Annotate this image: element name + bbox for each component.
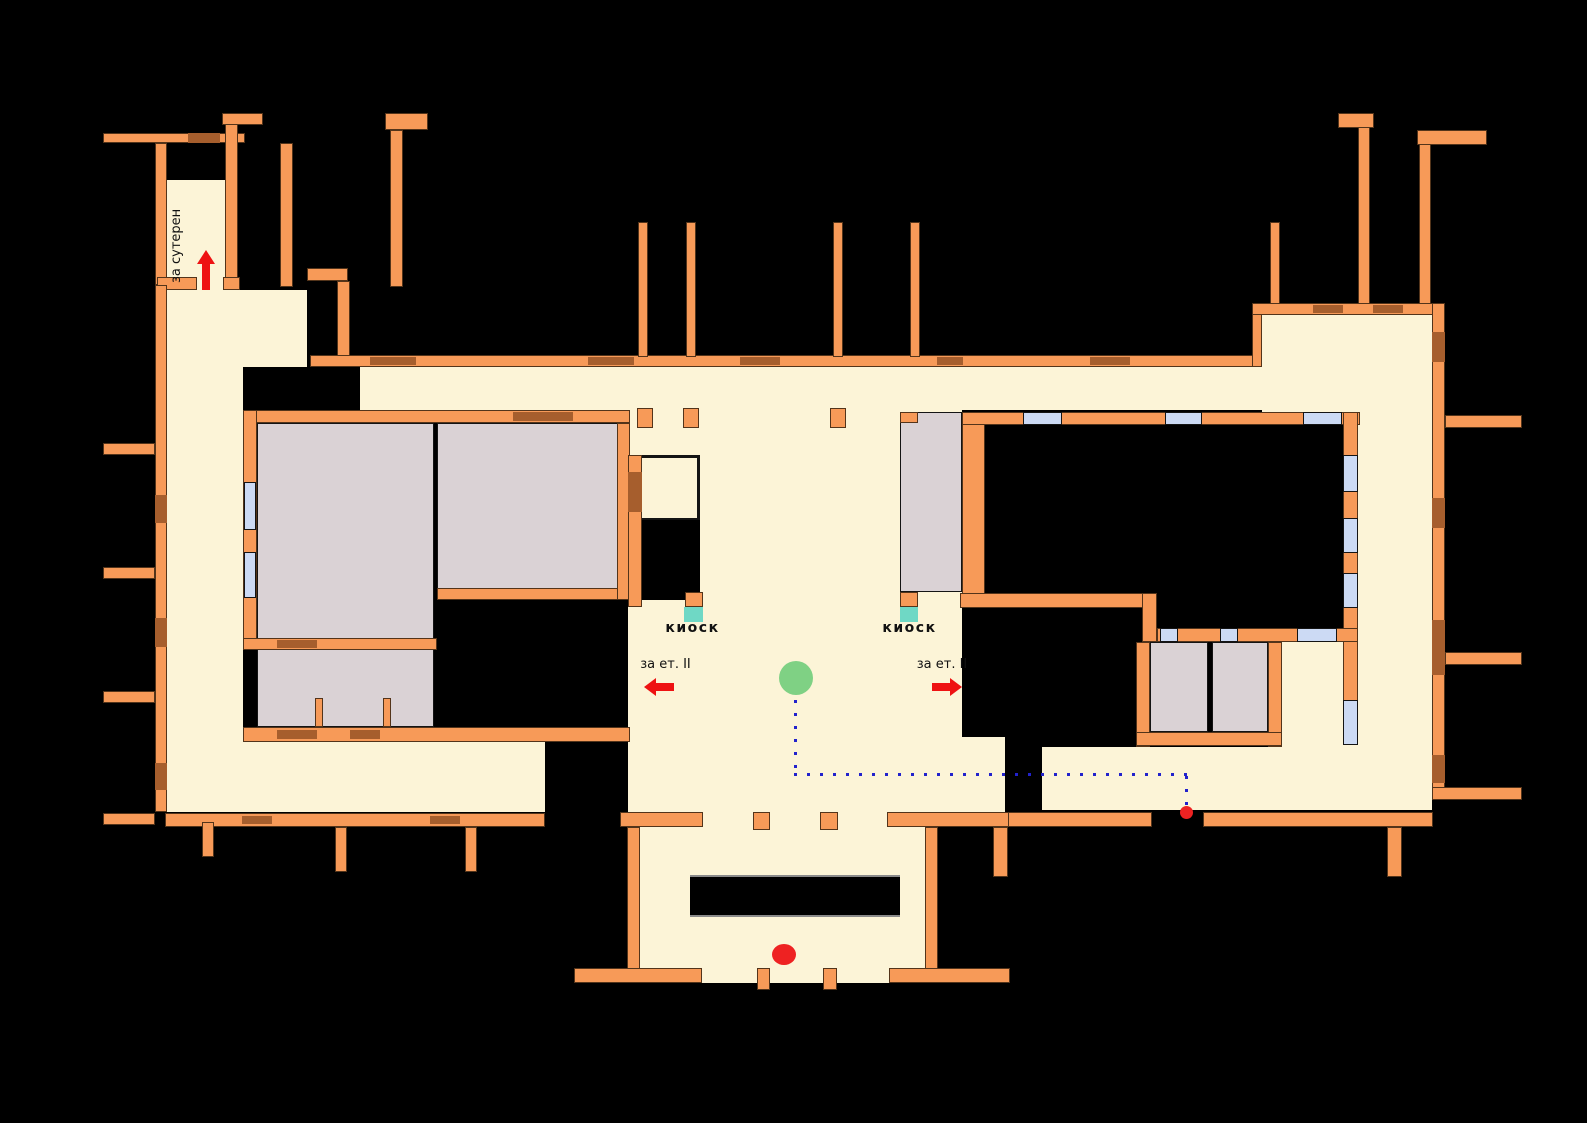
room	[257, 648, 434, 727]
door-lintel	[155, 495, 167, 523]
door-lintel	[277, 640, 317, 648]
wall-segment	[243, 638, 437, 650]
pier	[637, 408, 653, 428]
door-lintel	[155, 618, 167, 647]
wall-vestibule-west	[627, 827, 640, 983]
door-jamb	[757, 968, 770, 990]
door-jamb	[383, 698, 391, 727]
wall-stub	[103, 813, 155, 825]
wall-segment	[225, 113, 238, 285]
window	[1343, 518, 1358, 553]
wall-segment	[337, 281, 350, 357]
wall-segment	[1252, 303, 1445, 315]
wall-south	[165, 813, 545, 827]
pier	[830, 408, 846, 428]
wall-stub	[202, 822, 214, 857]
wall-segment	[280, 143, 293, 287]
window	[1343, 455, 1358, 492]
door-lintel	[1373, 305, 1403, 313]
wall-segment	[1136, 732, 1282, 746]
door-lintel	[370, 357, 416, 365]
window	[1343, 573, 1358, 608]
stair-edge	[690, 915, 900, 917]
wall-stub	[638, 222, 648, 357]
wall-stub	[103, 443, 155, 455]
entrance-stairs	[690, 877, 900, 915]
door-lintel	[740, 357, 780, 365]
wall-stub	[1432, 787, 1522, 800]
wall-segment	[685, 592, 703, 607]
wall-segment	[1008, 812, 1152, 827]
floor-top-corridor	[360, 367, 1262, 410]
room	[1212, 642, 1268, 732]
door-jamb	[820, 812, 838, 830]
floor-area	[167, 290, 307, 367]
door-lintel	[188, 133, 220, 143]
door-lintel	[1432, 755, 1445, 783]
wall-stub	[1445, 652, 1522, 665]
pier	[900, 412, 918, 423]
wall-segment	[307, 268, 348, 281]
wall-east-outer	[1432, 303, 1445, 800]
stairwell	[642, 520, 700, 600]
wall-segment	[620, 812, 703, 827]
floor-south-corridor-right	[1042, 747, 1432, 810]
start-marker	[779, 661, 813, 695]
wall-stub	[335, 827, 347, 872]
wall-segment	[223, 277, 240, 290]
door-lintel	[350, 730, 380, 739]
label-to-floor2-left: за ет. II	[633, 657, 698, 672]
wall-segment	[900, 592, 918, 607]
window	[1303, 412, 1342, 425]
window	[244, 482, 256, 530]
arrow-right-icon	[932, 678, 962, 696]
wall-stub	[993, 827, 1008, 877]
door-lintel	[1090, 357, 1130, 365]
window	[1160, 628, 1178, 642]
wall-stub	[103, 567, 155, 579]
wall-stub	[1270, 222, 1280, 307]
door-lintel	[628, 472, 642, 512]
door-lintel	[937, 357, 963, 365]
wall-segment	[1338, 113, 1374, 128]
window	[1343, 700, 1358, 745]
window	[1023, 412, 1062, 425]
wall-stub	[910, 222, 920, 357]
room	[437, 423, 627, 590]
door-lintel	[1432, 332, 1445, 362]
wall-stub	[1419, 130, 1431, 305]
door-jamb	[315, 698, 323, 727]
wall-west-outer	[155, 285, 167, 812]
door-lintel	[155, 763, 167, 790]
wall-vestibule-east	[925, 827, 938, 983]
floor-south-corridor-left	[167, 737, 545, 812]
wall-segment	[437, 588, 630, 600]
room	[900, 412, 962, 592]
wall-segment	[103, 133, 245, 143]
wall-hall-west	[962, 412, 985, 608]
door-lintel	[1432, 620, 1445, 675]
route-path	[794, 700, 797, 770]
arrow-up-icon	[197, 250, 215, 290]
wall-segment	[889, 968, 1010, 983]
wall-segment	[1417, 130, 1487, 145]
label-kiosk-left: киоск	[655, 620, 730, 636]
door-lintel	[1313, 305, 1343, 313]
wall-segment	[574, 968, 702, 983]
door-jamb	[753, 812, 770, 830]
window	[244, 552, 256, 598]
door-lintel	[430, 816, 460, 824]
pier	[683, 408, 699, 428]
wall-stub	[833, 222, 843, 357]
entrance-marker	[772, 944, 796, 965]
wall-stub	[1445, 415, 1522, 428]
partition-line	[697, 455, 700, 520]
route-path	[1185, 776, 1188, 808]
wall-stub	[103, 691, 155, 703]
wall-hall-north	[962, 412, 1360, 425]
window	[1297, 628, 1337, 642]
floor-plan: за сутерен киоск киоск за ет. II за ет. …	[0, 0, 1587, 1123]
route-end-marker	[1180, 806, 1193, 819]
floor-right-entry	[1262, 312, 1432, 412]
window	[1165, 412, 1202, 425]
wall-segment	[155, 143, 167, 285]
wall-stub	[1387, 827, 1402, 877]
wall-segment	[1142, 593, 1157, 642]
wall-segment	[222, 113, 263, 125]
door-jamb	[823, 968, 837, 990]
door-lintel	[277, 730, 317, 739]
room	[257, 423, 434, 640]
wall-hall-south	[960, 593, 1157, 608]
room	[1150, 642, 1208, 732]
wall-segment	[390, 130, 403, 287]
wall-stub	[1358, 113, 1370, 305]
wall-stub	[686, 222, 696, 357]
wall-stub	[465, 827, 477, 872]
label-to-basement: за сутерен	[169, 183, 184, 283]
door-lintel	[1432, 498, 1445, 528]
label-to-floor2-right: за ет. II	[908, 657, 976, 672]
door-lintel	[588, 357, 634, 365]
partition-line	[642, 455, 700, 458]
wall-segment	[385, 113, 428, 130]
door-lintel	[513, 412, 573, 421]
window	[1220, 628, 1238, 642]
arrow-left-icon	[644, 678, 674, 696]
label-kiosk-right: киоск	[872, 620, 947, 636]
route-path	[794, 773, 1188, 776]
wall-segment	[1203, 812, 1433, 827]
void-area	[310, 367, 360, 410]
partition-line	[642, 518, 700, 520]
wall-segment	[887, 812, 1010, 827]
door-lintel	[242, 816, 272, 824]
